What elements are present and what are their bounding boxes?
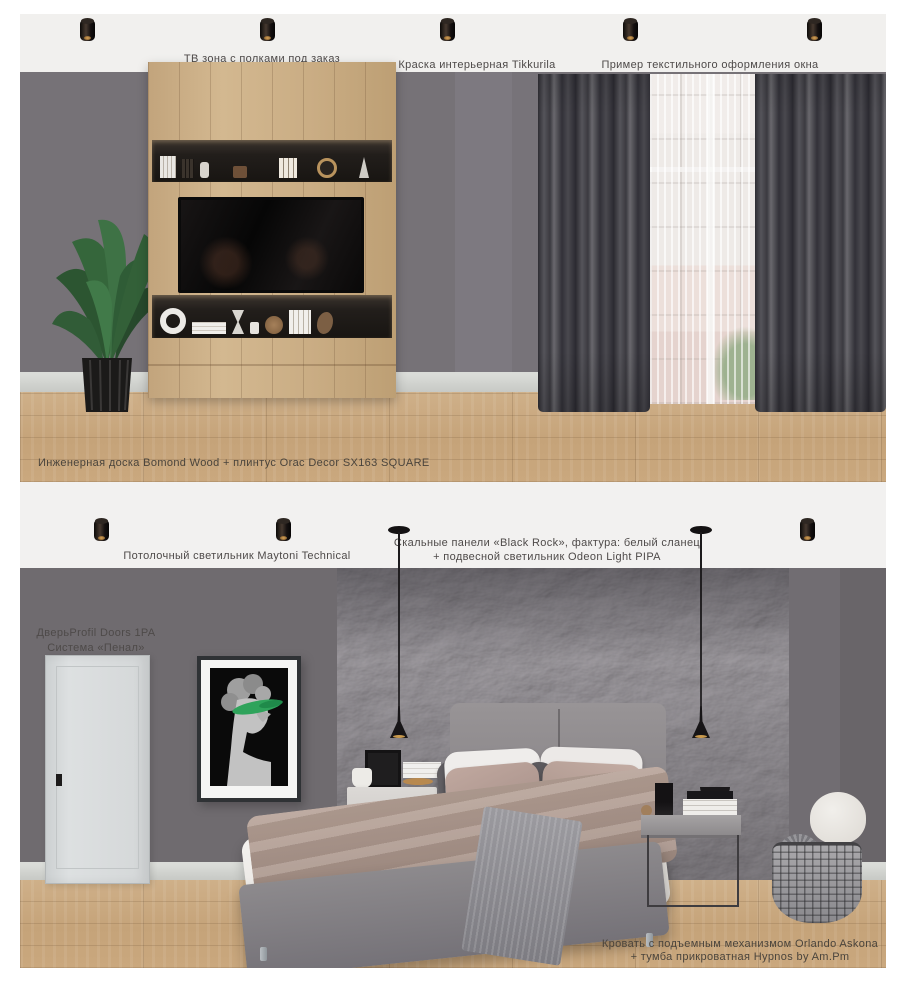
book-stack: [192, 322, 226, 334]
tv-cabinet: [148, 62, 396, 398]
pendant-rod: [700, 532, 702, 706]
spotlight-icon: [80, 20, 95, 41]
spotlight-icon: [807, 20, 822, 41]
black-book: [687, 791, 733, 799]
cone-decor: [359, 157, 369, 178]
basket-pillow-white: [810, 792, 866, 844]
tv-screen: [178, 197, 364, 293]
basket-group: [770, 782, 885, 922]
candle: [655, 783, 673, 815]
lower-shelf: [152, 295, 392, 338]
vase: [200, 162, 209, 178]
curtain-right: [755, 74, 886, 412]
book-stack: [683, 799, 737, 815]
label-rock-line2: + подвесной светильник Odeon Light PIPA: [433, 550, 661, 564]
spotlight-icon: [94, 520, 109, 541]
panel-tv-zone: ТВ зона с полками под заказ Краска интер…: [20, 14, 886, 482]
sheer-curtain: [650, 74, 770, 404]
decor: [233, 166, 247, 178]
cup: [250, 322, 259, 334]
spotlight-icon: [623, 20, 638, 41]
upper-shelf: [152, 140, 392, 182]
spotlight-icon: [440, 20, 455, 41]
pendant-rod: [398, 532, 400, 706]
label-bed-line2: + тумба прикроватная Hypnos by Am.Pm: [631, 951, 850, 964]
books: [279, 158, 297, 178]
label-paint: Краска интерьерная Tikkurila: [398, 58, 555, 72]
hourglass-decor: [232, 310, 244, 334]
spotlight-icon: [260, 20, 275, 41]
ring-sculpture: [160, 308, 186, 334]
wire-basket: [772, 842, 862, 923]
label-floor: Инженерная доска Bomond Wood + плинтус O…: [38, 456, 430, 470]
bed-leg: [260, 947, 267, 961]
nightstand-right-frame: [647, 835, 739, 907]
leaf-decor: [317, 312, 333, 334]
label-ceiling-light: Потолочный светильник Maytoni Technical: [123, 549, 350, 563]
moodboard: ТВ зона с полками под заказ Краска интер…: [0, 0, 908, 990]
door-handle: [56, 774, 62, 786]
books-vertical: [289, 310, 311, 334]
books: [182, 159, 194, 178]
paint-swatch-band: [455, 72, 512, 372]
label-rock-line1: Скальные панели «Black Rock», фактура: б…: [394, 536, 700, 550]
label-bed-line1: Кровать с подъемным механизмом Orlando A…: [602, 938, 878, 951]
books: [160, 156, 176, 178]
label-door-line1: ДверьProfil Doors 1PA: [37, 626, 156, 640]
round-plate: [317, 158, 337, 178]
door: [45, 655, 150, 884]
cabinet-seam: [148, 364, 396, 366]
nightstand-right-group: [635, 777, 750, 907]
label-door-line2: Система «Пенал»: [47, 641, 144, 655]
spotlight-icon: [276, 520, 291, 541]
woven-plate: [265, 316, 283, 334]
panel-bedroom: Потолочный светильник Maytoni Technical …: [20, 482, 886, 968]
bed: [240, 695, 670, 967]
window: [650, 74, 770, 404]
label-textile: Пример текстильного оформления окна: [601, 58, 818, 72]
curtain-left: [538, 74, 650, 412]
spotlight-icon: [800, 520, 815, 541]
